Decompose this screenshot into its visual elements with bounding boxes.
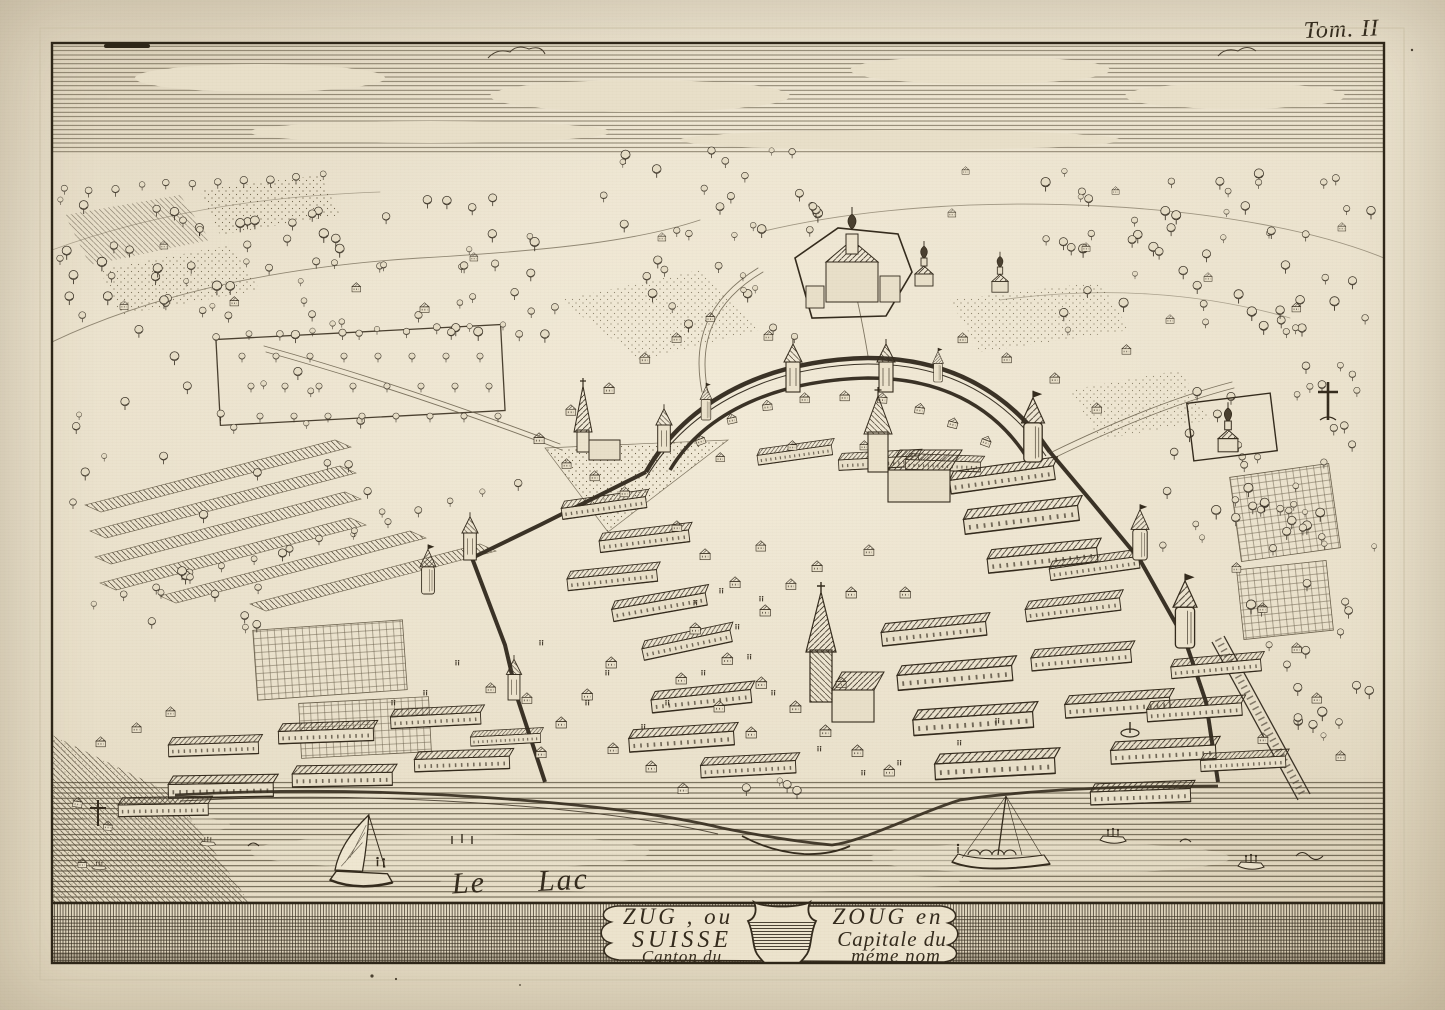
plate-svg: Tom. II bbox=[0, 0, 1445, 1010]
ink-smudge bbox=[104, 44, 150, 48]
cloud bbox=[250, 121, 610, 143]
cloud bbox=[490, 80, 790, 112]
house-row bbox=[292, 764, 397, 787]
cartouche-right-line1: ZOUG en bbox=[832, 904, 943, 929]
cloud bbox=[680, 130, 1120, 150]
shield-fess-stripes bbox=[746, 920, 818, 952]
cloud bbox=[1125, 83, 1345, 109]
engraving-plate: Tom. II bbox=[0, 0, 1445, 1010]
cloud bbox=[850, 56, 1110, 84]
house-row bbox=[118, 796, 213, 817]
cartouche-left-line1: ZUG , ou bbox=[623, 904, 733, 929]
house-row bbox=[278, 720, 378, 743]
house-row bbox=[1090, 780, 1196, 805]
tome-label: Tom. II bbox=[1303, 15, 1379, 44]
sky bbox=[52, 43, 1384, 155]
cloud bbox=[135, 64, 385, 92]
house-row bbox=[168, 735, 263, 757]
house-row bbox=[414, 748, 514, 771]
